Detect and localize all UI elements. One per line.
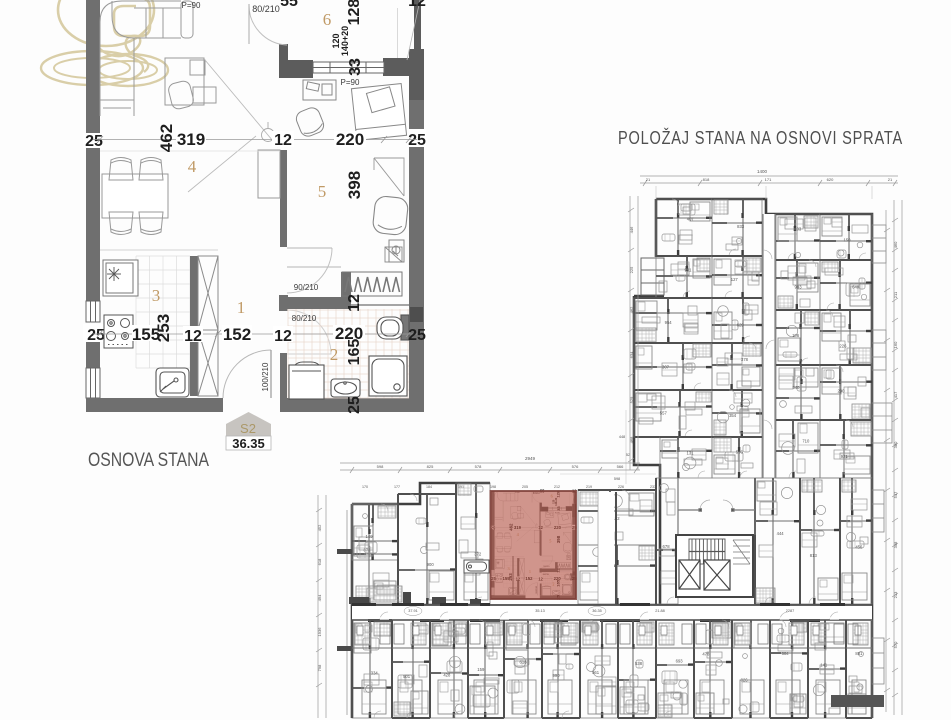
svg-text:990: 990 xyxy=(553,673,561,678)
svg-text:140+20: 140+20 xyxy=(340,26,350,56)
svg-text:578: 578 xyxy=(475,464,482,469)
svg-text:219: 219 xyxy=(586,485,592,489)
svg-text:212: 212 xyxy=(554,485,560,489)
svg-text:501: 501 xyxy=(403,674,411,679)
svg-text:983: 983 xyxy=(795,285,803,290)
svg-text:6: 6 xyxy=(323,10,332,29)
svg-text:444: 444 xyxy=(777,531,785,536)
svg-text:165: 165 xyxy=(346,339,363,366)
svg-text:529: 529 xyxy=(629,396,634,403)
svg-text:100/210: 100/210 xyxy=(261,362,270,391)
svg-text:P=90: P=90 xyxy=(182,1,201,10)
svg-text:618: 618 xyxy=(520,660,528,665)
svg-text:171: 171 xyxy=(765,177,772,182)
svg-text:881: 881 xyxy=(855,651,863,656)
svg-text:213: 213 xyxy=(893,591,898,598)
svg-text:446: 446 xyxy=(629,226,634,233)
svg-text:253: 253 xyxy=(154,314,173,342)
svg-text:561: 561 xyxy=(592,670,600,675)
svg-text:4: 4 xyxy=(188,157,197,176)
svg-text:25: 25 xyxy=(408,132,426,149)
svg-text:55: 55 xyxy=(280,0,298,10)
svg-text:494: 494 xyxy=(317,594,322,601)
svg-text:684: 684 xyxy=(782,651,790,656)
svg-text:1: 1 xyxy=(237,298,246,317)
svg-text:90/210: 90/210 xyxy=(294,283,319,292)
svg-text:557: 557 xyxy=(660,410,668,415)
svg-text:954: 954 xyxy=(665,320,673,325)
svg-text:36.35: 36.35 xyxy=(592,609,602,613)
svg-text:478: 478 xyxy=(702,651,710,656)
svg-text:798: 798 xyxy=(317,664,322,671)
svg-text:12: 12 xyxy=(274,132,292,149)
svg-text:1400: 1400 xyxy=(757,169,768,174)
svg-text:131: 131 xyxy=(687,451,695,456)
svg-text:21: 21 xyxy=(646,177,651,182)
svg-text:177: 177 xyxy=(394,485,400,489)
svg-text:2949: 2949 xyxy=(525,456,536,461)
svg-text:566: 566 xyxy=(617,464,624,469)
svg-text:640: 640 xyxy=(852,284,860,289)
svg-text:80/210: 80/210 xyxy=(252,4,280,14)
svg-text:547: 547 xyxy=(893,491,898,498)
svg-text:307: 307 xyxy=(662,365,670,370)
svg-text:226: 226 xyxy=(618,485,624,489)
svg-text:618: 618 xyxy=(317,558,322,565)
svg-text:3: 3 xyxy=(152,286,161,305)
svg-text:417: 417 xyxy=(893,391,898,398)
svg-text:52: 52 xyxy=(626,453,630,457)
svg-text:36.35: 36.35 xyxy=(232,436,265,451)
svg-text:629: 629 xyxy=(737,323,745,328)
svg-text:620: 620 xyxy=(827,177,834,182)
svg-text:2: 2 xyxy=(330,345,339,364)
svg-text:21: 21 xyxy=(888,177,893,182)
svg-text:170: 170 xyxy=(362,485,368,489)
svg-text:818: 818 xyxy=(703,177,710,182)
svg-text:462: 462 xyxy=(629,306,634,313)
svg-text:160: 160 xyxy=(893,341,898,348)
svg-text:POLOŽAJ STANA NA OSNOVI SPRATA: POLOŽAJ STANA NA OSNOVI SPRATA xyxy=(618,127,903,148)
svg-text:991: 991 xyxy=(684,267,692,272)
svg-text:634: 634 xyxy=(629,351,634,358)
svg-text:308: 308 xyxy=(893,541,898,548)
svg-text:226: 226 xyxy=(839,344,847,349)
svg-text:378: 378 xyxy=(741,357,749,362)
svg-text:2287: 2287 xyxy=(786,609,794,613)
svg-text:813: 813 xyxy=(810,553,818,558)
svg-text:460: 460 xyxy=(893,241,898,248)
svg-text:S2: S2 xyxy=(240,421,256,436)
svg-text:12: 12 xyxy=(274,328,292,345)
svg-text:33: 33 xyxy=(347,58,364,76)
svg-text:25: 25 xyxy=(346,396,363,414)
svg-text:678: 678 xyxy=(663,544,671,549)
svg-text:184: 184 xyxy=(426,485,432,489)
svg-text:290: 290 xyxy=(838,389,846,394)
svg-text:P=90: P=90 xyxy=(341,78,360,87)
svg-text:127: 127 xyxy=(731,277,739,282)
svg-text:225: 225 xyxy=(629,266,634,273)
svg-text:456: 456 xyxy=(855,545,863,550)
svg-text:538: 538 xyxy=(635,661,643,666)
svg-text:921: 921 xyxy=(841,454,849,459)
svg-text:159: 159 xyxy=(477,667,485,672)
svg-text:12: 12 xyxy=(184,328,202,345)
svg-text:570: 570 xyxy=(893,641,898,648)
svg-text:598: 598 xyxy=(377,464,384,469)
svg-text:211: 211 xyxy=(893,291,898,298)
svg-text:128: 128 xyxy=(346,0,363,25)
svg-text:900: 900 xyxy=(427,562,435,567)
svg-text:468: 468 xyxy=(629,436,634,443)
svg-text:149: 149 xyxy=(366,534,374,539)
svg-text:593: 593 xyxy=(736,449,744,454)
svg-text:141: 141 xyxy=(820,663,828,668)
svg-text:372: 372 xyxy=(474,551,482,556)
svg-text:540: 540 xyxy=(793,385,801,390)
svg-text:380: 380 xyxy=(893,441,898,448)
svg-text:198: 198 xyxy=(490,485,496,489)
svg-text:220: 220 xyxy=(336,130,364,149)
svg-text:205: 205 xyxy=(522,485,528,489)
svg-text:103: 103 xyxy=(794,226,802,231)
svg-text:833: 833 xyxy=(737,224,745,229)
svg-text:35.13: 35.13 xyxy=(535,609,545,613)
svg-text:12: 12 xyxy=(408,0,426,10)
svg-text:398: 398 xyxy=(345,171,364,199)
svg-text:598: 598 xyxy=(614,477,620,481)
svg-text:191: 191 xyxy=(458,485,464,489)
svg-text:21.88: 21.88 xyxy=(655,609,665,613)
svg-text:462: 462 xyxy=(157,124,176,152)
svg-text:448: 448 xyxy=(619,435,625,439)
svg-text:319: 319 xyxy=(177,130,205,149)
svg-text:25: 25 xyxy=(85,133,103,150)
svg-text:25: 25 xyxy=(408,327,426,344)
svg-text:25: 25 xyxy=(87,327,105,344)
svg-text:106: 106 xyxy=(792,333,800,338)
svg-text:152: 152 xyxy=(223,325,251,344)
svg-text:5: 5 xyxy=(318,182,327,201)
svg-text:334: 334 xyxy=(371,670,379,675)
svg-text:693: 693 xyxy=(676,658,684,663)
svg-text:12: 12 xyxy=(346,294,363,312)
svg-text:407: 407 xyxy=(687,217,695,222)
svg-text:150: 150 xyxy=(844,238,852,243)
svg-text:37.91: 37.91 xyxy=(408,609,418,613)
svg-text:428: 428 xyxy=(443,673,451,678)
svg-text:120: 120 xyxy=(331,33,341,48)
svg-text:1936: 1936 xyxy=(317,627,322,637)
svg-text:80/210: 80/210 xyxy=(292,314,317,323)
svg-text:354: 354 xyxy=(729,413,737,418)
svg-text:825: 825 xyxy=(427,464,434,469)
svg-text:OSNOVA STANA: OSNOVA STANA xyxy=(88,450,209,471)
svg-text:576: 576 xyxy=(572,464,579,469)
svg-text:452: 452 xyxy=(317,524,322,531)
svg-text:710: 710 xyxy=(802,438,810,443)
